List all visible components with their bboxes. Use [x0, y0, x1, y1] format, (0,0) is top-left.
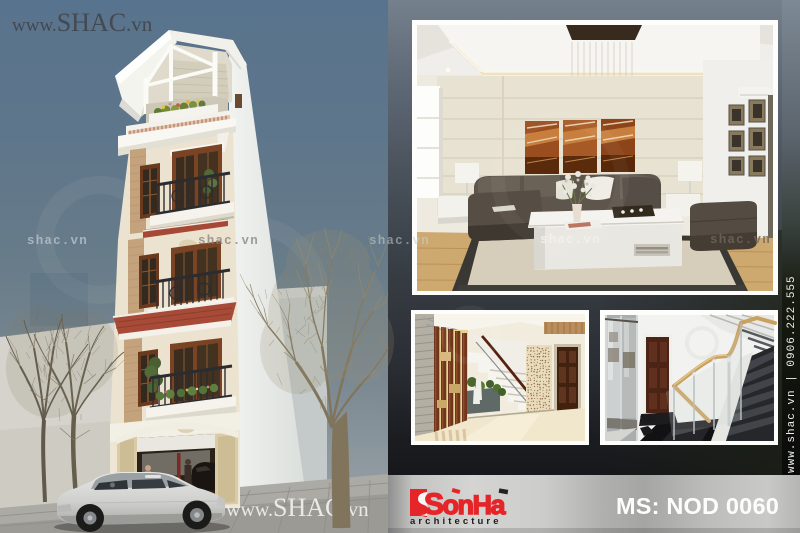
svg-text:MS: NOD 0060: MS: NOD 0060 [616, 493, 779, 519]
svg-text:www.shac.vn | 0906.222.555: www.shac.vn | 0906.222.555 [786, 275, 798, 473]
svg-text:shac.vn: shac.vn [198, 234, 259, 248]
svg-text:shac.vn: shac.vn [710, 233, 771, 247]
svg-text:shac.vn: shac.vn [27, 234, 88, 248]
svg-text:architecture: architecture [410, 516, 502, 527]
svg-text:shac.vn: shac.vn [369, 234, 430, 248]
